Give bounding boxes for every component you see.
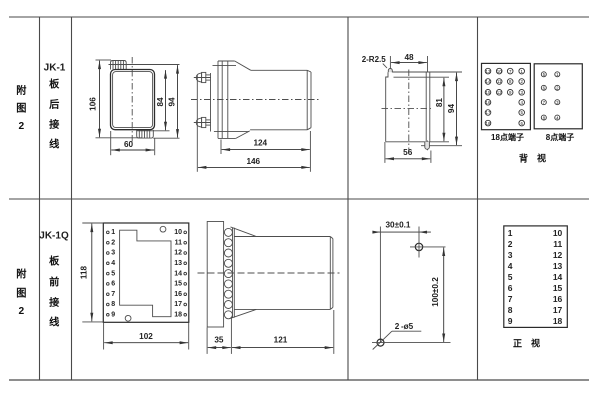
svg-text:2: 2 [18, 306, 24, 317]
svg-text:18: 18 [486, 121, 491, 126]
svg-text:15: 15 [553, 283, 563, 293]
svg-text:附: 附 [16, 268, 27, 281]
svg-text:48: 48 [404, 53, 414, 62]
svg-text:后: 后 [49, 98, 59, 111]
svg-text:94: 94 [447, 104, 456, 114]
svg-text:30±0.1: 30±0.1 [386, 221, 411, 230]
svg-text:84: 84 [156, 97, 165, 107]
svg-text:2 -ø5: 2 -ø5 [395, 322, 414, 331]
svg-text:102: 102 [139, 332, 153, 341]
svg-text:35: 35 [214, 336, 224, 345]
svg-text:10: 10 [553, 228, 563, 238]
svg-text:正 视: 正 视 [513, 338, 540, 349]
svg-text:2: 2 [111, 239, 115, 246]
svg-text:17: 17 [486, 110, 491, 115]
svg-text:106: 106 [88, 97, 97, 111]
svg-text:14: 14 [553, 272, 563, 282]
svg-text:15: 15 [174, 281, 182, 288]
svg-text:4: 4 [508, 261, 513, 271]
svg-text:56: 56 [403, 148, 413, 157]
svg-text:16: 16 [553, 294, 563, 304]
svg-text:16: 16 [486, 100, 491, 105]
svg-text:10: 10 [174, 229, 182, 236]
svg-text:7: 7 [508, 294, 513, 304]
svg-text:12: 12 [497, 90, 502, 95]
svg-text:7: 7 [111, 291, 115, 298]
svg-text:接: 接 [49, 118, 60, 131]
svg-text:8点端子: 8点端子 [546, 132, 574, 142]
svg-text:10: 10 [497, 69, 502, 74]
svg-text:4: 4 [111, 260, 115, 267]
svg-text:60: 60 [124, 140, 134, 149]
svg-text:背 视: 背 视 [519, 153, 546, 164]
svg-text:13: 13 [553, 261, 563, 271]
svg-text:板: 板 [49, 255, 60, 268]
svg-text:2: 2 [508, 239, 513, 249]
svg-text:13: 13 [486, 69, 491, 74]
svg-text:100±0.2: 100±0.2 [431, 277, 440, 307]
svg-text:8: 8 [508, 305, 513, 315]
svg-text:附: 附 [16, 84, 27, 97]
svg-text:11: 11 [553, 239, 562, 249]
svg-text:线: 线 [49, 138, 60, 151]
svg-text:5: 5 [508, 272, 513, 282]
svg-text:94: 94 [168, 97, 177, 107]
svg-text:14: 14 [486, 79, 491, 84]
svg-text:线: 线 [49, 315, 60, 328]
svg-text:14: 14 [174, 270, 182, 277]
svg-text:前: 前 [49, 275, 59, 288]
svg-text:18: 18 [553, 316, 563, 326]
svg-text:9: 9 [111, 312, 115, 319]
svg-text:1: 1 [508, 228, 513, 238]
svg-text:11: 11 [497, 79, 502, 84]
svg-text:16: 16 [174, 291, 182, 298]
svg-text:2: 2 [18, 121, 24, 132]
svg-text:图: 图 [16, 103, 26, 115]
svg-text:15: 15 [486, 90, 491, 95]
svg-text:18: 18 [174, 312, 182, 319]
svg-text:17: 17 [553, 305, 563, 315]
svg-text:12: 12 [553, 250, 563, 260]
svg-text:81: 81 [435, 98, 444, 108]
svg-text:1: 1 [111, 229, 115, 236]
svg-text:17: 17 [174, 301, 182, 308]
svg-text:JK-1: JK-1 [44, 63, 66, 74]
svg-text:5: 5 [111, 270, 115, 277]
svg-text:6: 6 [111, 281, 115, 288]
svg-text:12: 12 [174, 250, 182, 257]
svg-text:JK-1Q: JK-1Q [39, 231, 69, 242]
svg-text:接: 接 [49, 296, 60, 309]
svg-text:124: 124 [253, 139, 267, 148]
svg-text:146: 146 [246, 157, 260, 166]
svg-text:2-R2.5: 2-R2.5 [362, 55, 387, 64]
svg-text:118: 118 [80, 265, 89, 279]
svg-text:18点端子: 18点端子 [491, 132, 524, 142]
svg-text:13: 13 [174, 260, 182, 267]
svg-text:图: 图 [16, 288, 26, 300]
svg-text:11: 11 [175, 239, 183, 246]
svg-text:3: 3 [111, 250, 115, 257]
svg-text:板: 板 [49, 78, 60, 91]
svg-text:8: 8 [111, 301, 115, 308]
svg-text:3: 3 [508, 250, 513, 260]
svg-text:121: 121 [274, 336, 288, 345]
svg-text:9: 9 [508, 316, 513, 326]
svg-text:6: 6 [508, 283, 513, 293]
